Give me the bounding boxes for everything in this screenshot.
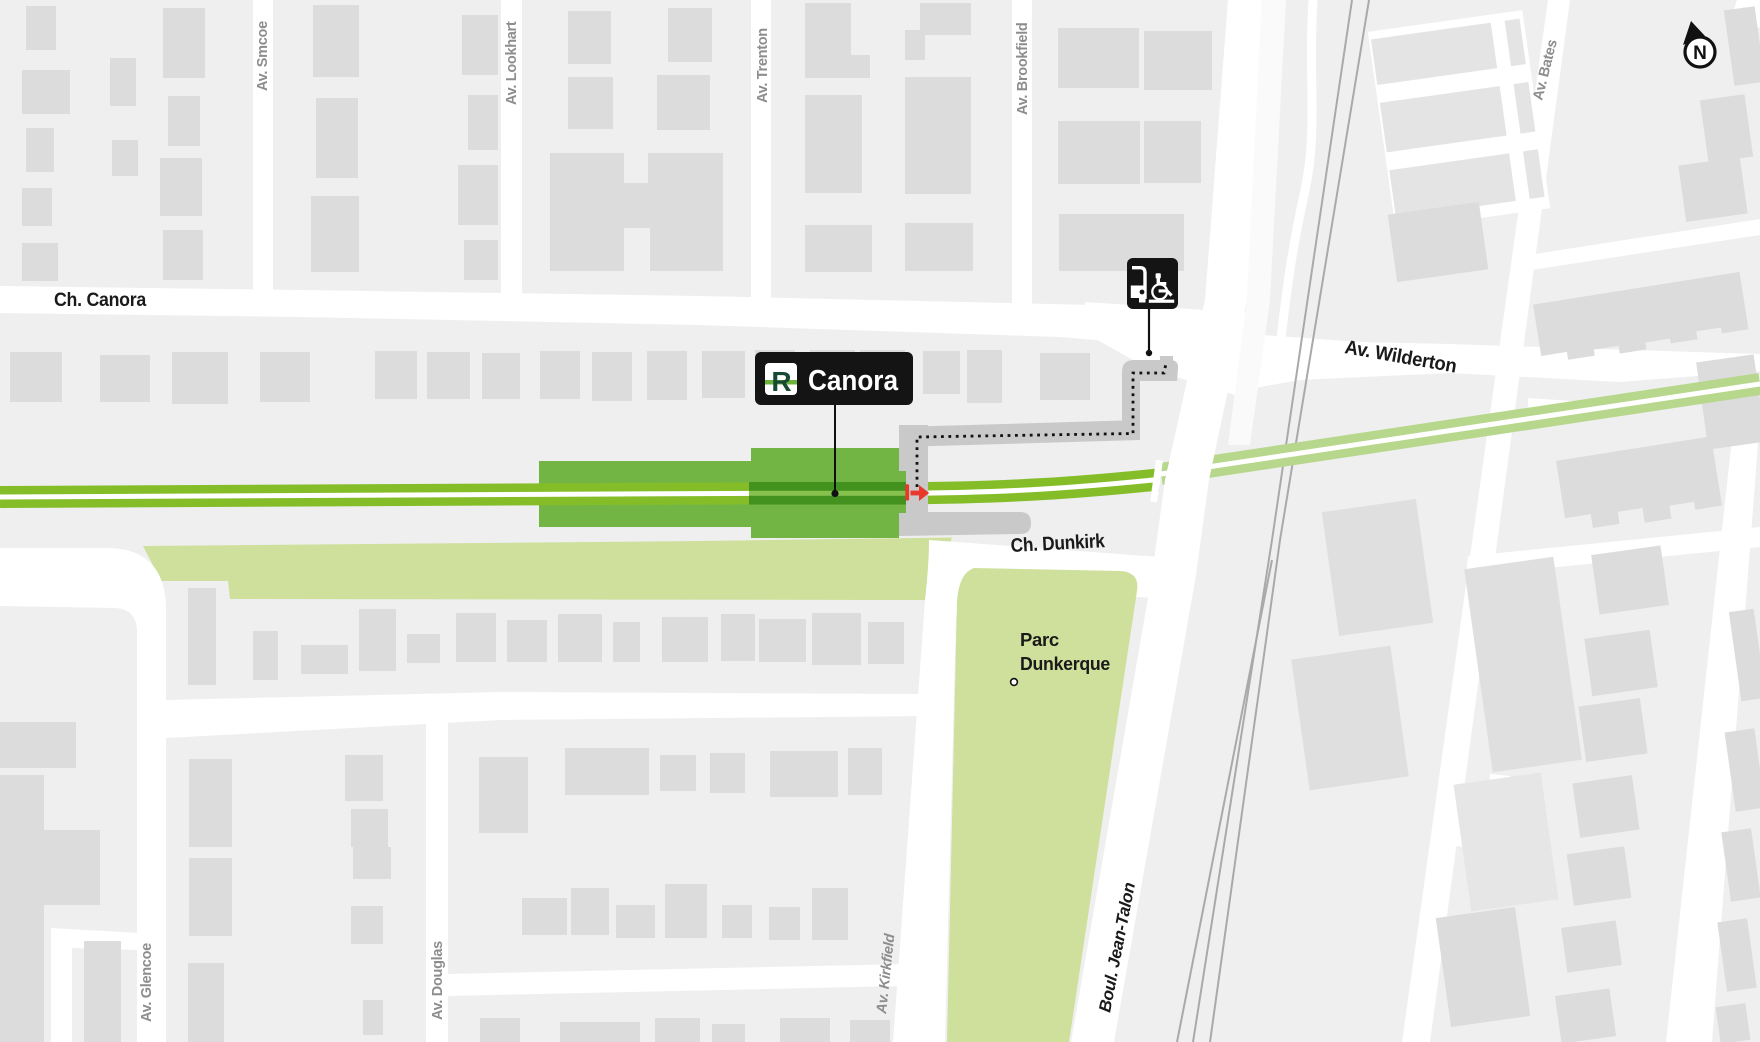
svg-text:Av. Trenton: Av. Trenton (755, 28, 771, 103)
svg-text:Ch. Canora: Ch. Canora (54, 289, 146, 311)
svg-text:R: R (771, 366, 791, 397)
svg-text:Av. Smcoe: Av. Smcoe (255, 21, 271, 91)
svg-text:Av. Glencoe: Av. Glencoe (139, 943, 155, 1022)
svg-text:Av. Lookhart: Av. Lookhart (504, 21, 520, 105)
svg-text:Dunkerque: Dunkerque (1020, 653, 1110, 674)
svg-text:N: N (1693, 43, 1707, 64)
svg-text:Canora: Canora (808, 365, 899, 397)
svg-text:Parc: Parc (1020, 629, 1059, 650)
svg-text:Av. Douglas: Av. Douglas (430, 941, 446, 1020)
svg-text:Av. Brookfield: Av. Brookfield (1015, 23, 1031, 115)
